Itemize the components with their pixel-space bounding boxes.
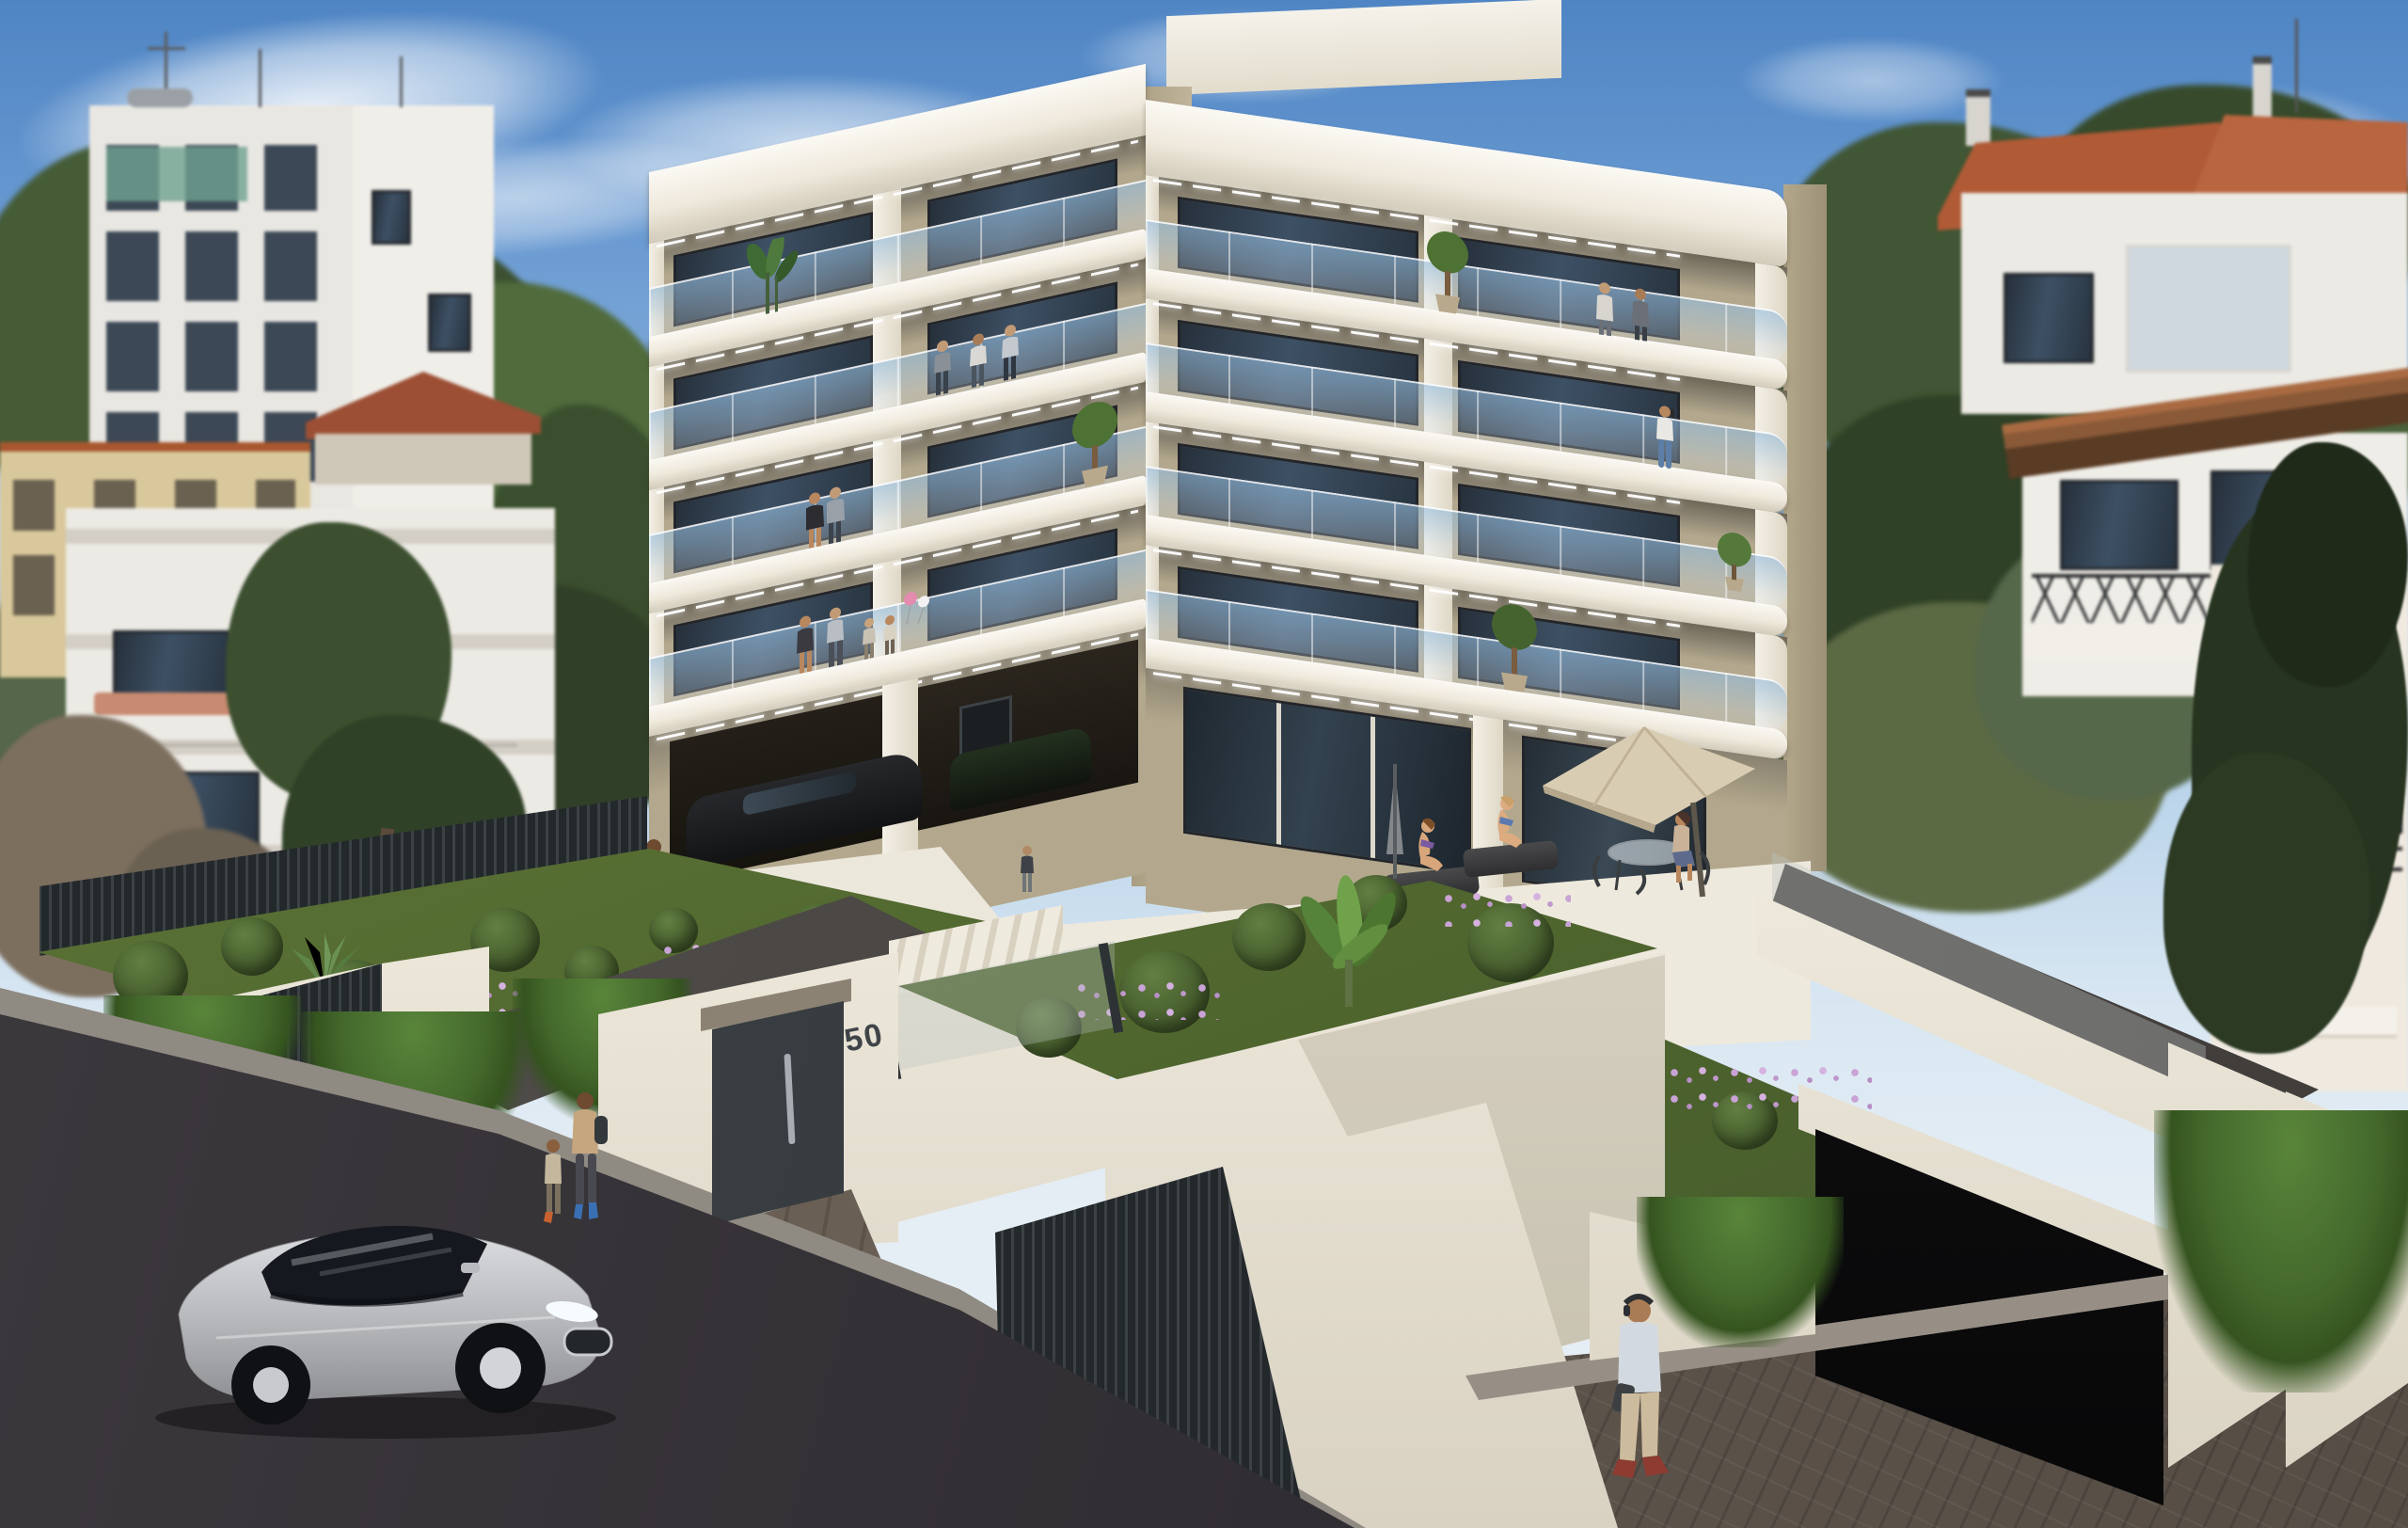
rw-balcony-plant	[1706, 527, 1763, 596]
walking-man-icon	[1582, 1294, 1693, 1520]
tiled-roof-house	[306, 372, 541, 485]
roof-bulkhead	[1166, 0, 1561, 95]
potted-tree-icon	[1061, 393, 1129, 493]
rw-balcony-tree-2	[1477, 597, 1552, 697]
seated-woman-icon	[1663, 811, 1704, 883]
garden-left-bush-2	[221, 917, 283, 976]
cypress-tree-top	[2248, 442, 2408, 687]
roof-antenna-2	[259, 49, 261, 107]
yellow-house-roof-edge	[0, 442, 310, 452]
car-mirror	[461, 1263, 480, 1273]
terrace-figure-icon	[1014, 845, 1040, 892]
sunbather-2	[1488, 795, 1529, 853]
seated-woman	[1663, 811, 1704, 883]
glass-door-mullion-1	[1276, 703, 1281, 845]
banana-plant-icon	[1279, 875, 1420, 1007]
woman-on-phone-icon	[1648, 402, 1682, 470]
rw-balcony-tree	[1415, 225, 1481, 317]
antenna-crossbar	[148, 47, 185, 50]
banana-plant	[1279, 875, 1420, 1007]
terrace-figure	[1014, 845, 1040, 892]
house-number: 50	[842, 1016, 888, 1059]
mother-child-icon	[532, 1091, 626, 1225]
balcony-tree-icon	[1415, 225, 1481, 317]
potted-tree-left-wing	[1061, 393, 1129, 493]
orange-roof-window-2	[2004, 273, 2094, 363]
side-wall-window-2	[428, 294, 471, 352]
car-grille	[564, 1329, 611, 1355]
tiled-roof-wall	[315, 434, 531, 485]
glass-door-mullion-2	[1370, 716, 1375, 858]
architectural-render-scene: 50	[0, 0, 2408, 1528]
center-garden-flower-patch-2	[1439, 889, 1571, 927]
cypress-tree-lower	[2163, 753, 2370, 1054]
solar-heater	[127, 88, 193, 107]
chimney-1	[1966, 89, 1990, 146]
side-wall-window-1	[372, 190, 411, 245]
pergola-window-1	[2060, 480, 2178, 570]
roof-antenna-right	[2295, 19, 2298, 113]
ivy-right-big	[2154, 1110, 2408, 1393]
closed-parasol-icon	[1381, 764, 1409, 879]
woman-on-phone	[1648, 402, 1682, 470]
balcony-plant-icon	[1706, 527, 1763, 596]
pedestrian-mother-child	[532, 1091, 626, 1225]
orange-roof-window-1	[2126, 245, 2291, 373]
green-glass-balcony	[106, 147, 247, 201]
right-wing-side-face	[1783, 184, 1827, 871]
sunbather-1	[1409, 817, 1450, 877]
roof-antenna-3	[400, 56, 403, 107]
orange-roof-houses	[1938, 56, 2408, 414]
pedestrian-man	[1582, 1294, 1693, 1520]
balcony-tree-2-icon	[1477, 597, 1552, 697]
sunbather-2-icon	[1488, 795, 1529, 853]
sunbather-1-icon	[1409, 817, 1450, 877]
closed-parasol	[1381, 764, 1409, 879]
